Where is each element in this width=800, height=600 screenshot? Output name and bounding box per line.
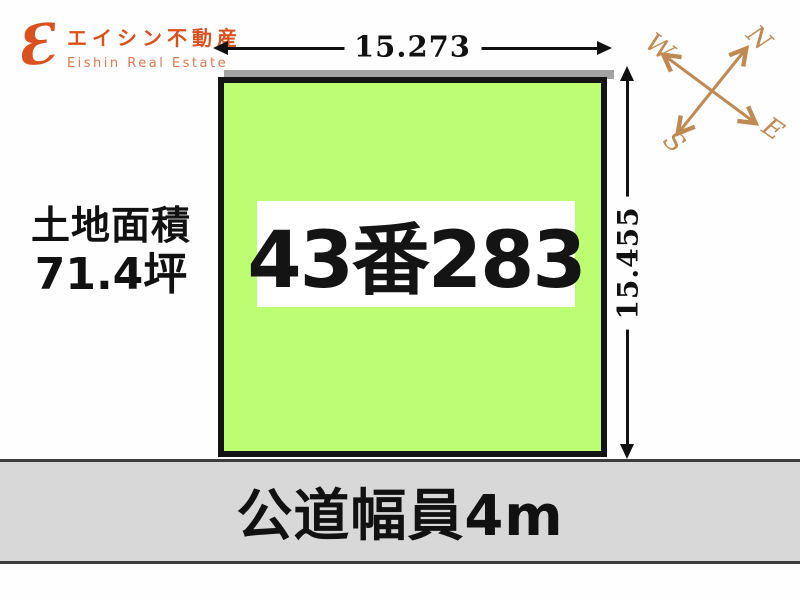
land-area-value: 71.4坪 (8, 251, 214, 299)
width-dimension-label: 15.273 (344, 30, 481, 64)
compass-rose-icon: N W S E (632, 6, 792, 158)
land-area-block: 土地面積 71.4坪 (8, 204, 214, 299)
arrowhead-down-icon (620, 444, 634, 459)
arrowhead-up-icon (620, 66, 634, 81)
road-strip: 公道幅員4m (0, 459, 800, 564)
road-width-label: 公道幅員4m (236, 471, 563, 552)
compass-east-label: E (755, 111, 789, 147)
land-area-label: 土地面積 (8, 204, 214, 251)
arrowhead-right-icon (597, 41, 612, 55)
compass-we-axis (665, 56, 754, 122)
height-dimension-label: 15.455 (612, 196, 645, 329)
eishin-logo: Ɛ エイシン不動産 Eishin Real Estate (16, 14, 242, 72)
compass-south-label: S (657, 125, 691, 158)
lot-number-label: 43番283 (257, 201, 575, 307)
width-dimension-arrow: 15.273 (213, 36, 612, 60)
height-dimension-arrow: 15.455 (617, 66, 639, 459)
land-parcel: 43番283 (218, 77, 607, 457)
land-plot-diagram: Ɛ エイシン不動産 Eishin Real Estate 15.273 N W … (0, 0, 800, 600)
eishin-logo-icon: Ɛ (12, 16, 58, 75)
arrowhead-left-icon (213, 41, 228, 55)
